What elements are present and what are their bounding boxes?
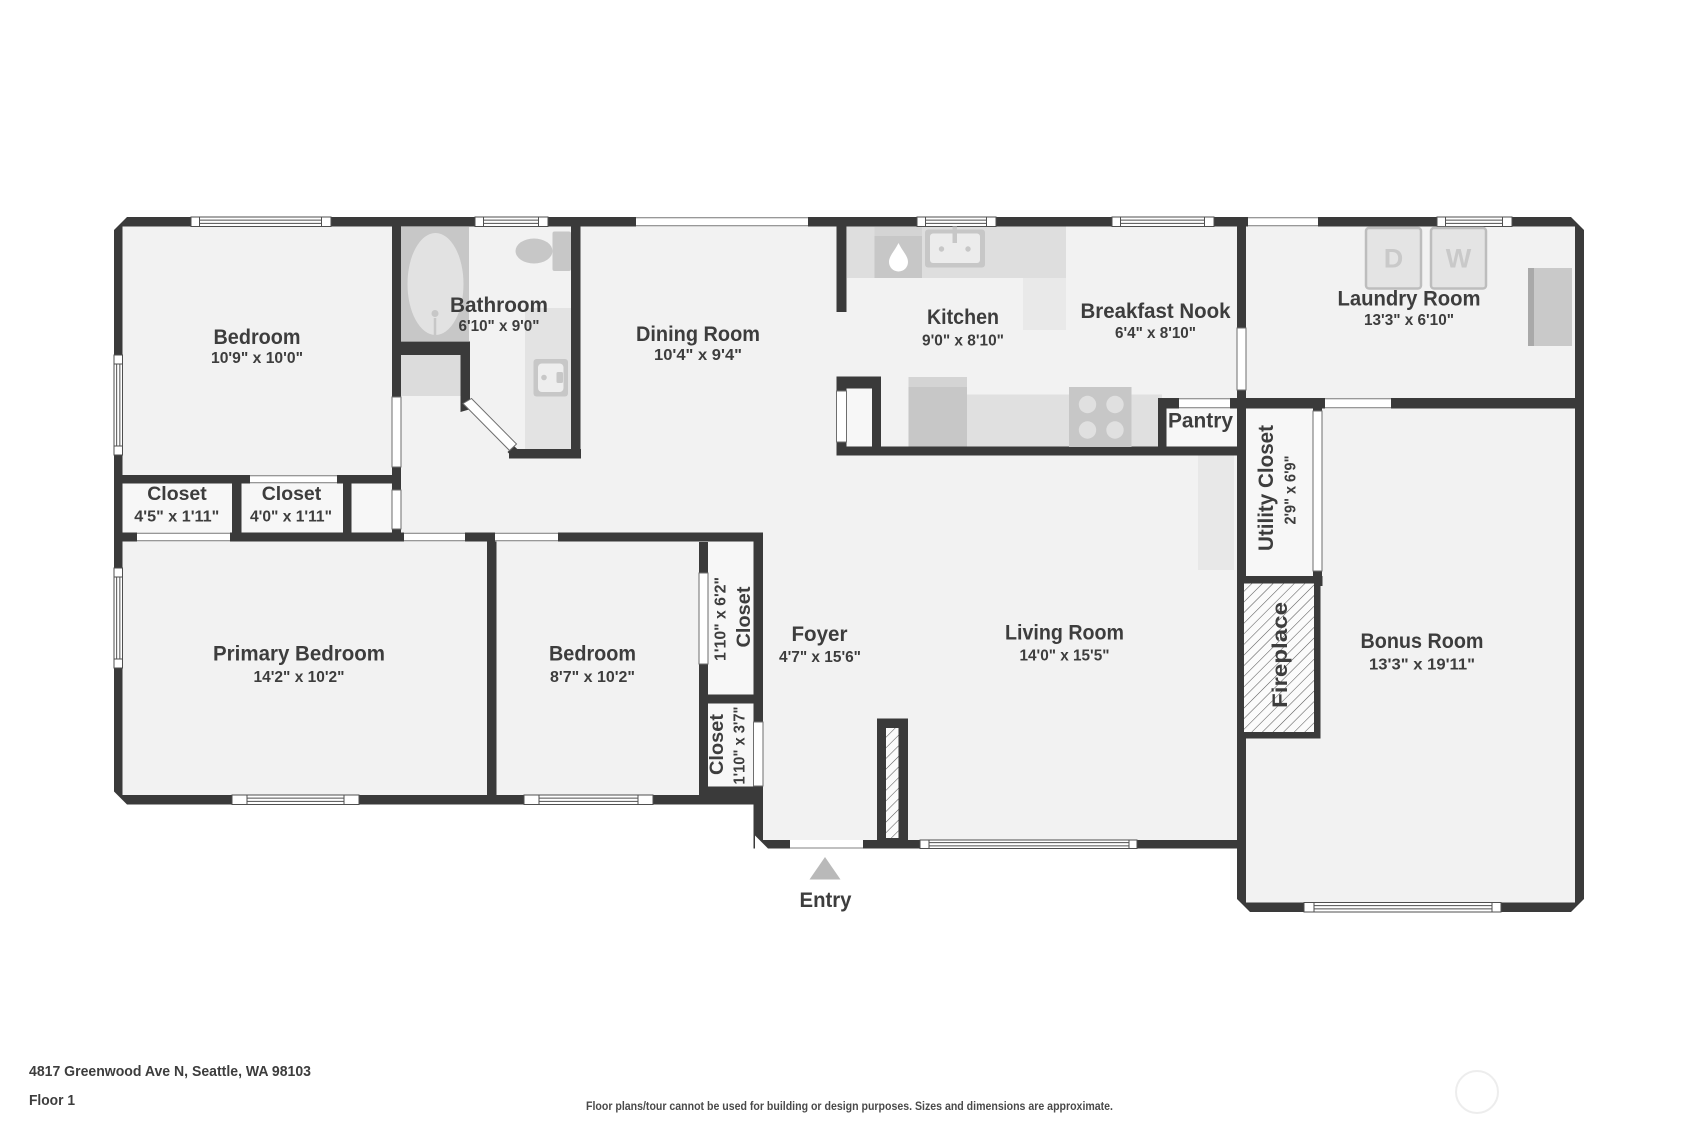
svg-text:Kitchen: Kitchen (927, 306, 999, 329)
svg-text:Floor 1: Floor 1 (29, 1092, 75, 1109)
svg-text:Breakfast Nook: Breakfast Nook (1081, 300, 1231, 323)
svg-text:14'2" x 10'2": 14'2" x 10'2" (254, 669, 345, 686)
svg-text:2'9" x 6'9": 2'9" x 6'9" (1283, 456, 1300, 525)
svg-text:Bathroom: Bathroom (450, 294, 548, 317)
svg-text:1'10" x 3'7": 1'10" x 3'7" (732, 707, 749, 785)
svg-text:6'4" x 8'10": 6'4" x 8'10" (1115, 325, 1196, 342)
svg-text:Closet: Closet (733, 586, 755, 648)
svg-text:14'0" x 15'5": 14'0" x 15'5" (1020, 648, 1110, 665)
svg-text:Pantry: Pantry (1168, 410, 1233, 433)
svg-text:Foyer: Foyer (792, 623, 848, 646)
svg-text:4'7" x 15'6": 4'7" x 15'6" (779, 649, 861, 666)
svg-text:10'9" x 10'0": 10'9" x 10'0" (211, 350, 303, 367)
svg-text:D: D (1384, 244, 1404, 274)
svg-text:8'7" x 10'2": 8'7" x 10'2" (550, 669, 635, 686)
svg-text:Bedroom: Bedroom (214, 326, 301, 349)
svg-text:Closet: Closet (706, 713, 728, 775)
svg-text:Primary Bedroom: Primary Bedroom (213, 643, 385, 666)
svg-text:Bonus Room: Bonus Room (1361, 630, 1484, 653)
svg-text:Dining Room: Dining Room (636, 323, 760, 346)
svg-text:Closet: Closet (147, 483, 207, 505)
svg-text:W: W (1446, 244, 1472, 274)
svg-text:1'10" x 6'2": 1'10" x 6'2" (712, 577, 729, 661)
svg-text:Closet: Closet (262, 483, 322, 505)
svg-text:Utility Closet: Utility Closet (1255, 425, 1278, 551)
svg-text:Bedroom: Bedroom (549, 643, 636, 666)
svg-text:Laundry Room: Laundry Room (1338, 288, 1481, 311)
svg-text:6'10" x 9'0": 6'10" x 9'0" (459, 318, 540, 335)
svg-text:Living Room: Living Room (1005, 622, 1124, 645)
svg-text:4'5" x 1'11": 4'5" x 1'11" (134, 509, 219, 526)
svg-text:10'4" x 9'4": 10'4" x 9'4" (654, 347, 742, 364)
svg-text:Entry: Entry (800, 889, 852, 912)
svg-text:4817 Greenwood Ave N, Seattle,: 4817 Greenwood Ave N, Seattle, WA 98103 (29, 1063, 311, 1080)
svg-text:13'3" x 6'10": 13'3" x 6'10" (1364, 312, 1454, 329)
svg-text:4'0" x 1'11": 4'0" x 1'11" (250, 509, 332, 526)
svg-text:Fireplace: Fireplace (1269, 602, 1292, 708)
svg-text:Floor plans/tour cannot be use: Floor plans/tour cannot be used for buil… (586, 1101, 1113, 1113)
svg-text:13'3" x 19'11": 13'3" x 19'11" (1369, 657, 1475, 674)
svg-text:9'0" x 8'10": 9'0" x 8'10" (922, 333, 1004, 350)
